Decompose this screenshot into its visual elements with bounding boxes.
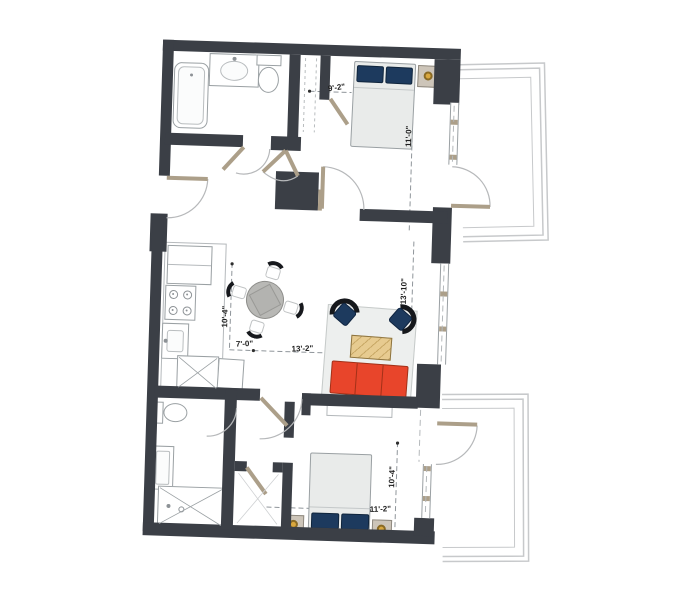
dim-bedroom2-width: 11'-2" [360, 504, 400, 516]
balcony1-door-leaf [451, 206, 490, 207]
bedroom1-closet-door-leaf [330, 99, 349, 125]
bathroom2-door-arc [207, 407, 237, 437]
dim-kitchen-length: 10'-4" [220, 297, 231, 337]
bedroom2-door-leaf [260, 398, 288, 426]
entry-door-leaf [167, 178, 208, 179]
dim-living-length: 13'-10" [399, 271, 410, 311]
door-arcs [159, 146, 492, 466]
window-centerlines [417, 105, 454, 517]
dim-kitchen-width: 7'-0" [224, 339, 264, 351]
dim-living-width: 13'-2" [282, 343, 322, 355]
closet1-door-leaf2 [285, 150, 299, 175]
balcony2-door-arc [436, 424, 477, 465]
dim-bedroom2-length: 10'-4" [387, 457, 398, 497]
entry-door-arc [167, 178, 208, 219]
dim-bedroom1-length: 11'-0" [404, 116, 415, 156]
hatch-marks [159, 357, 226, 526]
balcony1-door-arc [451, 167, 491, 207]
closet2-door-leaf [246, 467, 267, 494]
bathroom1-door-leaf [223, 147, 244, 171]
bedroom1-door-leaf [322, 167, 323, 209]
bedroom1-door-arc [322, 167, 365, 210]
dishwasher-x [178, 357, 217, 388]
shower-x [159, 488, 222, 526]
balcony2-door-leaf [437, 423, 477, 424]
apartment-floor-plan: 9'-2" 11'-0" 13'-10" 10'-4" 7'-0" 13'-2"… [0, 0, 700, 600]
closet1-door-arc [263, 172, 298, 181]
floor-plan-canvas: 9'-2" 11'-0" 13'-10" 10'-4" 7'-0" 13'-2"… [0, 0, 700, 600]
